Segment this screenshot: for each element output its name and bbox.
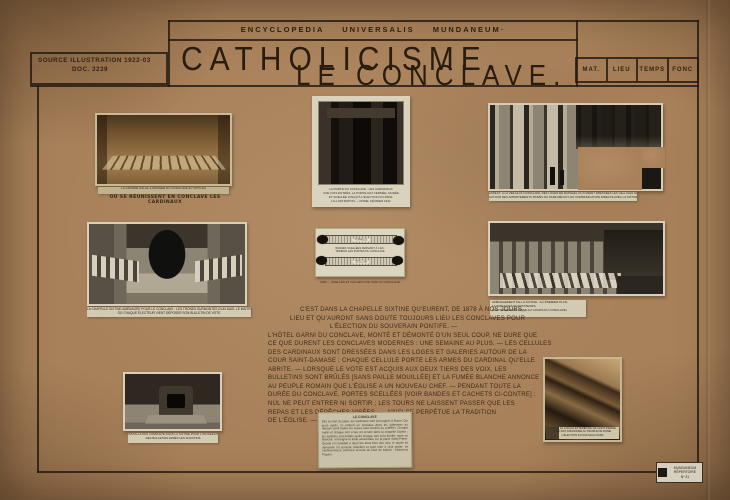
frame-line-top: [168, 20, 699, 22]
wax-seal-icon: [392, 256, 403, 265]
loggia-figure-2: [560, 170, 564, 185]
photo-exterior-loggia: VUE DE LA LOGGIA EXTÉRIEURE DE SAINT-PIE…: [543, 357, 622, 442]
stamp-logo-icon: [658, 468, 667, 477]
loggia-figure: [550, 167, 555, 185]
photo-ballot-stove: [123, 372, 222, 431]
doc-number: DOC. 3239: [72, 66, 162, 73]
seal-card-text: BANDES SCELLÉES FERMANT À L'EX-TÉRIEUR L…: [316, 247, 404, 253]
page-subtitle: LE CONCLAVE.: [296, 58, 567, 93]
photo-cutout-notch: [578, 147, 642, 190]
encyclopedia-banner: ENCYCLOPEDIA UNIVERSALIS MUNDANEUM·: [168, 25, 578, 34]
stove-mouth: [167, 394, 185, 408]
col-fonc: FONC: [667, 57, 700, 83]
band-label-top: FORMULE: [353, 238, 370, 241]
engraving-tables: [102, 156, 226, 170]
frame-line-bottom: [37, 471, 699, 473]
source-box: SOURCE ILLUSTRATION 1922-03 DOC. 3239: [30, 52, 168, 85]
caption-sistine-thrones: LA CHAPELLE SIXTINE AMÉNAGÉE POUR LE CON…: [87, 307, 251, 317]
wax-seal-icon: [317, 235, 328, 244]
photo-conclave-door: [318, 101, 404, 185]
caption-seal-bands: 1922 — SCELLÉS ET CACHETS DE CIRE DU CON…: [310, 280, 410, 284]
frame-line-right: [697, 20, 699, 473]
wax-seal-icon: [393, 236, 404, 245]
col-temps: TEMPS: [636, 57, 667, 83]
photo-sistine-thrones: [87, 222, 247, 306]
caption-raphael-loggia: ASPECT, À LA VEILLE DU CONCLAVE, DES LOG…: [489, 192, 637, 201]
source-line: SOURCE ILLUSTRATION 1922-03: [38, 57, 162, 64]
clipping-body: Dès la mort du pape, les cardinaux sont …: [322, 420, 408, 457]
loggia-dark-ceiling: [576, 105, 661, 149]
newspaper-clipping: LE CONCLAVE Dès la mort du pape, les car…: [318, 412, 412, 469]
stove-platform: [145, 415, 207, 424]
throne-row-left: [92, 254, 139, 281]
caption-ballot-stove: INSTALLATION COMPLÈTE DANS LA SIXTINE PO…: [128, 433, 218, 443]
stamp-text: MUNDANEUMRÉPERTOIRENº 31: [669, 466, 701, 479]
caption-conclave-door: LA PORTE DU CONCLAVE : LES CARDINAUXUNE …: [316, 188, 406, 204]
caption-exterior-loggia: VUE DE LA LOGGIA EXTÉRIEURE DE SAINT-PIE…: [546, 427, 619, 439]
door-lintel: [327, 108, 395, 118]
photo-refectory-engraving: [95, 113, 232, 186]
sealed-band-top: FORMULE: [325, 235, 397, 244]
band-label-bottom: SIGILLUM: [353, 260, 369, 263]
caption-refectory-handwritten: OÙ SE RÉUNISSENT EN CONCLAVE LES CARDINA…: [95, 195, 235, 205]
col-lieu: LIEU: [606, 57, 637, 83]
photo-sixtine-arrangement: [488, 221, 665, 296]
caption-refectory-printed: LA GRANDE SALLE À MANGER DU CONCLAVE AU …: [98, 187, 229, 194]
seal-bands-card: FORMULE BANDES SCELLÉES FERMANT À L'EX-T…: [315, 228, 405, 277]
sixtine-scrutineer-tables: [500, 273, 621, 289]
handwritten-notes: C'EST DANS LA CHAPELLE SIXTINE QU'EURENT…: [268, 306, 556, 426]
classification-table: MAT. LIEU TEMPS FONC: [575, 57, 699, 83]
sixtine-dark-corner: [617, 276, 663, 294]
wax-seal-icon: [316, 256, 327, 265]
frame-line-left: [37, 85, 39, 473]
cardboard-crease: [706, 0, 710, 500]
throne-row-right: [195, 254, 242, 281]
col-mat: MAT.: [575, 57, 606, 83]
collection-stamp: MUNDANEUMRÉPERTOIRENº 31: [656, 462, 703, 483]
sealed-band-bottom: SIGILLUM: [325, 257, 397, 266]
photo-conclave-door-mount: LA PORTE DU CONCLAVE : LES CARDINAUXUNE …: [312, 96, 410, 207]
photo-cutout-notch-2: [642, 147, 665, 168]
archive-board: ENCYCLOPEDIA UNIVERSALIS MUNDANEUM· CATH…: [0, 0, 730, 500]
